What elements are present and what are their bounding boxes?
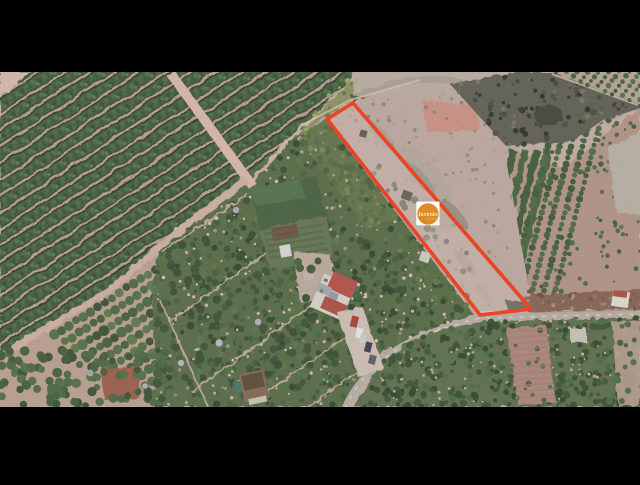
svg-text:Invenio: Invenio: [418, 212, 438, 218]
